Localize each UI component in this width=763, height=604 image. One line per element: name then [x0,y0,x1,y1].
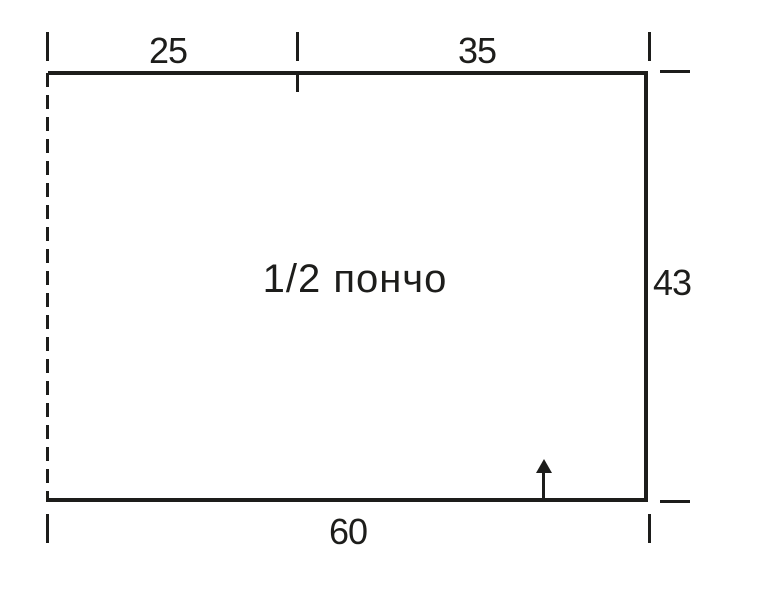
top-right-width-label: 35 [458,33,496,69]
bottom-width-label: 60 [329,514,367,550]
tick-top-right [648,32,651,61]
direction-arrow-head [536,459,552,473]
pattern-schematic: 25 35 43 60 1/2 пончо [0,0,763,604]
tick-right-upper [660,70,690,73]
direction-arrow-stem [542,472,545,500]
top-left-width-label: 25 [149,33,187,69]
right-height-label: 43 [653,265,691,301]
tick-top-left [46,32,49,61]
tick-bottom-left [46,514,49,543]
tick-bottom-right [648,514,651,543]
piece-label: 1/2 пончо [263,259,448,299]
tick-top-middle-lower [296,75,299,92]
tick-top-middle-upper [296,32,299,61]
fold-line-icon [46,73,49,502]
tick-right-lower [660,500,690,503]
